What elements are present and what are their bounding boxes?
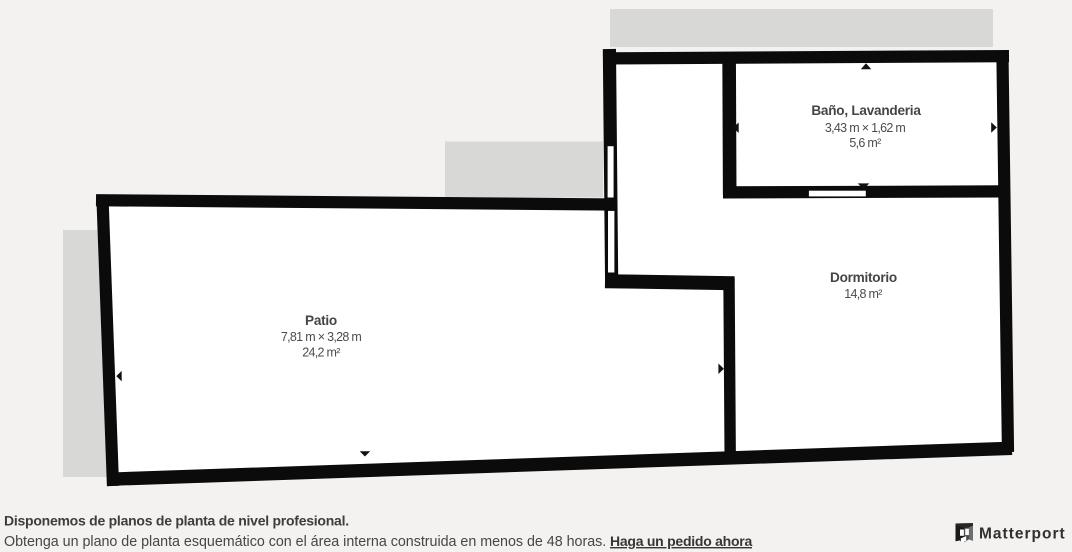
svg-text:5,6 m²: 5,6 m² xyxy=(849,136,881,150)
svg-text:Obtenga un plano de planta esq: Obtenga un plano de planta esquemático c… xyxy=(4,534,606,550)
svg-text:7,81 m × 3,28 m: 7,81 m × 3,28 m xyxy=(281,330,361,344)
svg-text:Matterport: Matterport xyxy=(979,526,1066,543)
svg-text:Dormitorio: Dormitorio xyxy=(830,270,897,285)
svg-text:Baño, Lavanderia: Baño, Lavanderia xyxy=(811,103,921,118)
svg-text:14,8 m²: 14,8 m² xyxy=(844,287,882,301)
svg-text:Haga un pedido ahora: Haga un pedido ahora xyxy=(610,533,752,549)
svg-text:24,2 m²: 24,2 m² xyxy=(302,345,340,359)
svg-text:3,43 m × 1,62 m: 3,43 m × 1,62 m xyxy=(825,121,905,135)
svg-text:Disponemos de planos de planta: Disponemos de planos de planta de nivel … xyxy=(4,512,349,528)
svg-text:Patio: Patio xyxy=(305,313,337,328)
